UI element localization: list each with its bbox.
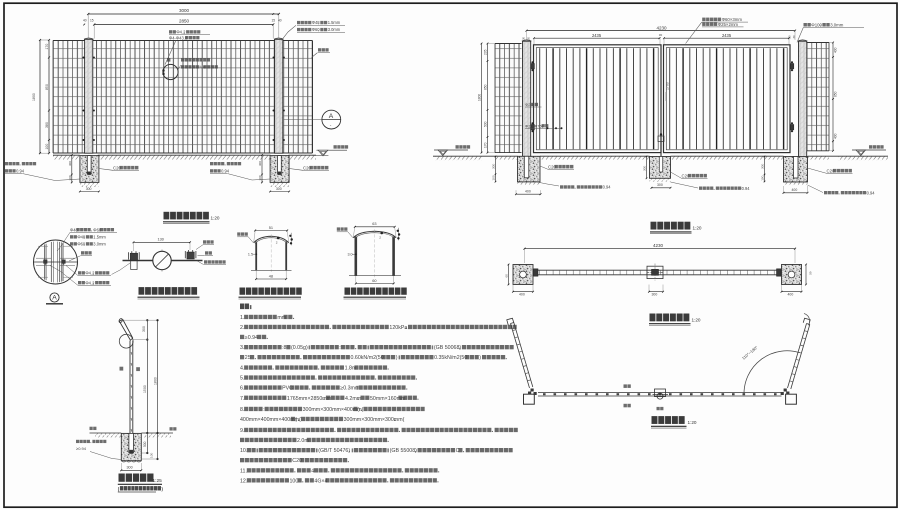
svg-text:1.5: 1.5 (248, 252, 253, 256)
svg-text:≥0.94: ≥0.94 (76, 446, 87, 451)
svg-text:1.: 1. (240, 315, 244, 321)
svg-text:850: 850 (483, 84, 487, 90)
svg-text:60: 60 (504, 274, 508, 278)
svg-text:60: 60 (372, 278, 376, 283)
svg-text:1:20: 1:20 (692, 318, 701, 323)
svg-text:(GB 55008): (GB 55008) (390, 448, 418, 454)
svg-text:25: 25 (245, 355, 251, 361)
svg-text:20: 20 (527, 36, 531, 40)
svg-text:2435: 2435 (592, 33, 602, 38)
svg-text:48: 48 (269, 273, 273, 278)
svg-text:A: A (52, 295, 57, 302)
svg-text::: : (263, 407, 264, 413)
svg-text:235: 235 (483, 49, 487, 55)
svg-text:500: 500 (483, 121, 487, 127)
svg-text:15: 15 (272, 19, 276, 23)
svg-text:): ) (396, 355, 398, 361)
svg-text:100: 100 (760, 175, 764, 180)
svg-text:3.: 3. (240, 345, 244, 351)
svg-text:1800: 1800 (153, 377, 157, 385)
svg-text:Φ48: Φ48 (77, 235, 86, 240)
svg-text:3.0mm: 3.0mm (93, 242, 106, 247)
svg-text:2: 2 (379, 236, 381, 240)
svg-text:4.: 4. (240, 366, 244, 372)
svg-text:30: 30 (659, 33, 663, 37)
svg-text:Φ25×2mm: Φ25×2mm (718, 22, 739, 27)
svg-text:6.: 6. (240, 386, 244, 392)
svg-text:1500: 1500 (143, 385, 147, 393)
svg-text:11.: 11. (240, 468, 247, 474)
svg-text:1800: 1800 (477, 94, 481, 101)
svg-text:2: 2 (276, 241, 278, 245)
svg-text:0.94: 0.94 (742, 186, 751, 191)
svg-text:380: 380 (45, 122, 49, 128)
svg-text:Φ100: Φ100 (811, 22, 822, 27)
svg-text:850: 850 (45, 84, 49, 90)
svg-text:40: 40 (278, 19, 282, 23)
svg-text:100: 100 (258, 175, 262, 180)
svg-text:300: 300 (258, 161, 262, 166)
svg-text:4230: 4230 (653, 243, 664, 248)
svg-text:0.94: 0.94 (603, 185, 612, 190)
svg-text:400: 400 (792, 188, 798, 192)
svg-text:): ) (358, 407, 360, 413)
svg-text:): ) (479, 355, 481, 361)
svg-text:30: 30 (522, 36, 526, 40)
svg-text:130: 130 (158, 237, 164, 242)
svg-text:Φ4.2: Φ4.2 (85, 271, 95, 276)
svg-text:(0.05g): (0.05g) (291, 345, 308, 351)
svg-text:A: A (329, 113, 334, 120)
svg-text::8: :8 (282, 345, 286, 351)
svg-text:): ) (296, 417, 298, 423)
svg-text:400: 400 (788, 292, 794, 296)
svg-text:2850: 2850 (179, 19, 190, 24)
svg-text:7.: 7. (240, 396, 244, 402)
svg-text:0.94: 0.94 (16, 169, 25, 174)
svg-text:100: 100 (491, 175, 495, 180)
svg-text::: : (339, 345, 340, 351)
svg-text:20: 20 (788, 35, 792, 39)
svg-text:400: 400 (834, 47, 838, 53)
svg-text:1.5mm: 1.5mm (93, 235, 106, 240)
svg-text:170: 170 (483, 142, 487, 148)
svg-text:1:20: 1:20 (688, 420, 697, 425)
svg-text:0.60kN/m2(50: 0.60kN/m2(50 (351, 355, 384, 361)
svg-text:1.5mm: 1.5mm (328, 20, 341, 25)
svg-text:≥0.94: ≥0.94 (245, 335, 258, 341)
svg-text:120kPa: 120kPa (389, 325, 407, 331)
svg-text:300: 300 (86, 187, 92, 191)
svg-text:1800: 1800 (32, 93, 36, 101)
svg-text:3.0mm: 3.0mm (830, 22, 844, 27)
svg-text:3.0mm: 3.0mm (328, 27, 341, 32)
svg-text:Φ20(Φ75): Φ20(Φ75) (525, 123, 544, 128)
svg-text:9.: 9. (240, 428, 244, 434)
svg-text:4.2mm: 4.2mm (345, 396, 362, 402)
svg-text:51: 51 (269, 225, 273, 230)
svg-text:300: 300 (127, 466, 133, 470)
svg-text:10.: 10. (240, 448, 247, 454)
svg-text:100: 100 (150, 453, 154, 458)
svg-text:12.: 12. (240, 478, 247, 484)
svg-text:300: 300 (142, 326, 146, 332)
svg-text:1:20: 1:20 (211, 216, 220, 221)
svg-text:3.0: 3.0 (348, 253, 353, 257)
svg-text:300: 300 (491, 164, 495, 169)
svg-text:60: 60 (808, 272, 812, 276)
svg-text:4: 4 (311, 468, 314, 474)
svg-text:300: 300 (760, 164, 764, 169)
svg-text:100: 100 (45, 144, 49, 150)
svg-text:300: 300 (68, 161, 72, 166)
svg-text:63: 63 (372, 221, 376, 226)
svg-text:100: 100 (68, 175, 72, 180)
svg-text:400: 400 (519, 292, 525, 296)
svg-text:30: 30 (792, 35, 796, 39)
svg-text:Φ4-Φ43.0: Φ4-Φ43.0 (169, 35, 188, 40)
svg-text:300: 300 (276, 187, 282, 191)
svg-text:15: 15 (90, 19, 94, 23)
svg-text:Φ4.2: Φ4.2 (85, 280, 95, 285)
svg-text:0.35kN/m2(50: 0.35kN/m2(50 (434, 355, 467, 361)
svg-text:1:20: 1:20 (693, 226, 702, 231)
svg-text:2435: 2435 (722, 33, 732, 38)
svg-text:4230: 4230 (657, 26, 668, 31)
svg-text:Φ4.2: Φ4.2 (176, 30, 186, 35)
svg-text:1:25: 1:25 (153, 478, 163, 484)
svg-text:8.: 8. (240, 407, 244, 413)
svg-text:5.: 5. (240, 376, 244, 382)
svg-text:400: 400 (525, 190, 531, 194)
svg-text:0.94: 0.94 (867, 190, 876, 195)
svg-text:1765mm×2850mm: 1765mm×2850mm (287, 396, 332, 402)
svg-text:400: 400 (834, 133, 838, 139)
svg-text:500: 500 (143, 441, 147, 447)
svg-text:3000: 3000 (179, 8, 190, 13)
svg-text:(GB/T 50476): (GB/T 50476) (318, 448, 350, 454)
svg-text:Φ48: Φ48 (312, 20, 321, 25)
svg-text:170: 170 (45, 44, 49, 50)
svg-text:Φ60: Φ60 (312, 27, 321, 32)
svg-text:1700: 1700 (665, 82, 669, 90)
svg-text:Φ60: Φ60 (77, 242, 86, 247)
svg-text:300: 300 (657, 183, 663, 187)
svg-text:40: 40 (83, 19, 87, 23)
svg-text:0.94: 0.94 (221, 169, 230, 174)
svg-text:300: 300 (652, 292, 658, 296)
svg-text:(GB 50068): (GB 50068) (434, 345, 462, 351)
svg-text:300: 300 (642, 166, 646, 171)
svg-text:100: 100 (290, 478, 299, 484)
svg-text:850: 850 (834, 91, 838, 97)
svg-text:2.: 2. (240, 325, 244, 331)
